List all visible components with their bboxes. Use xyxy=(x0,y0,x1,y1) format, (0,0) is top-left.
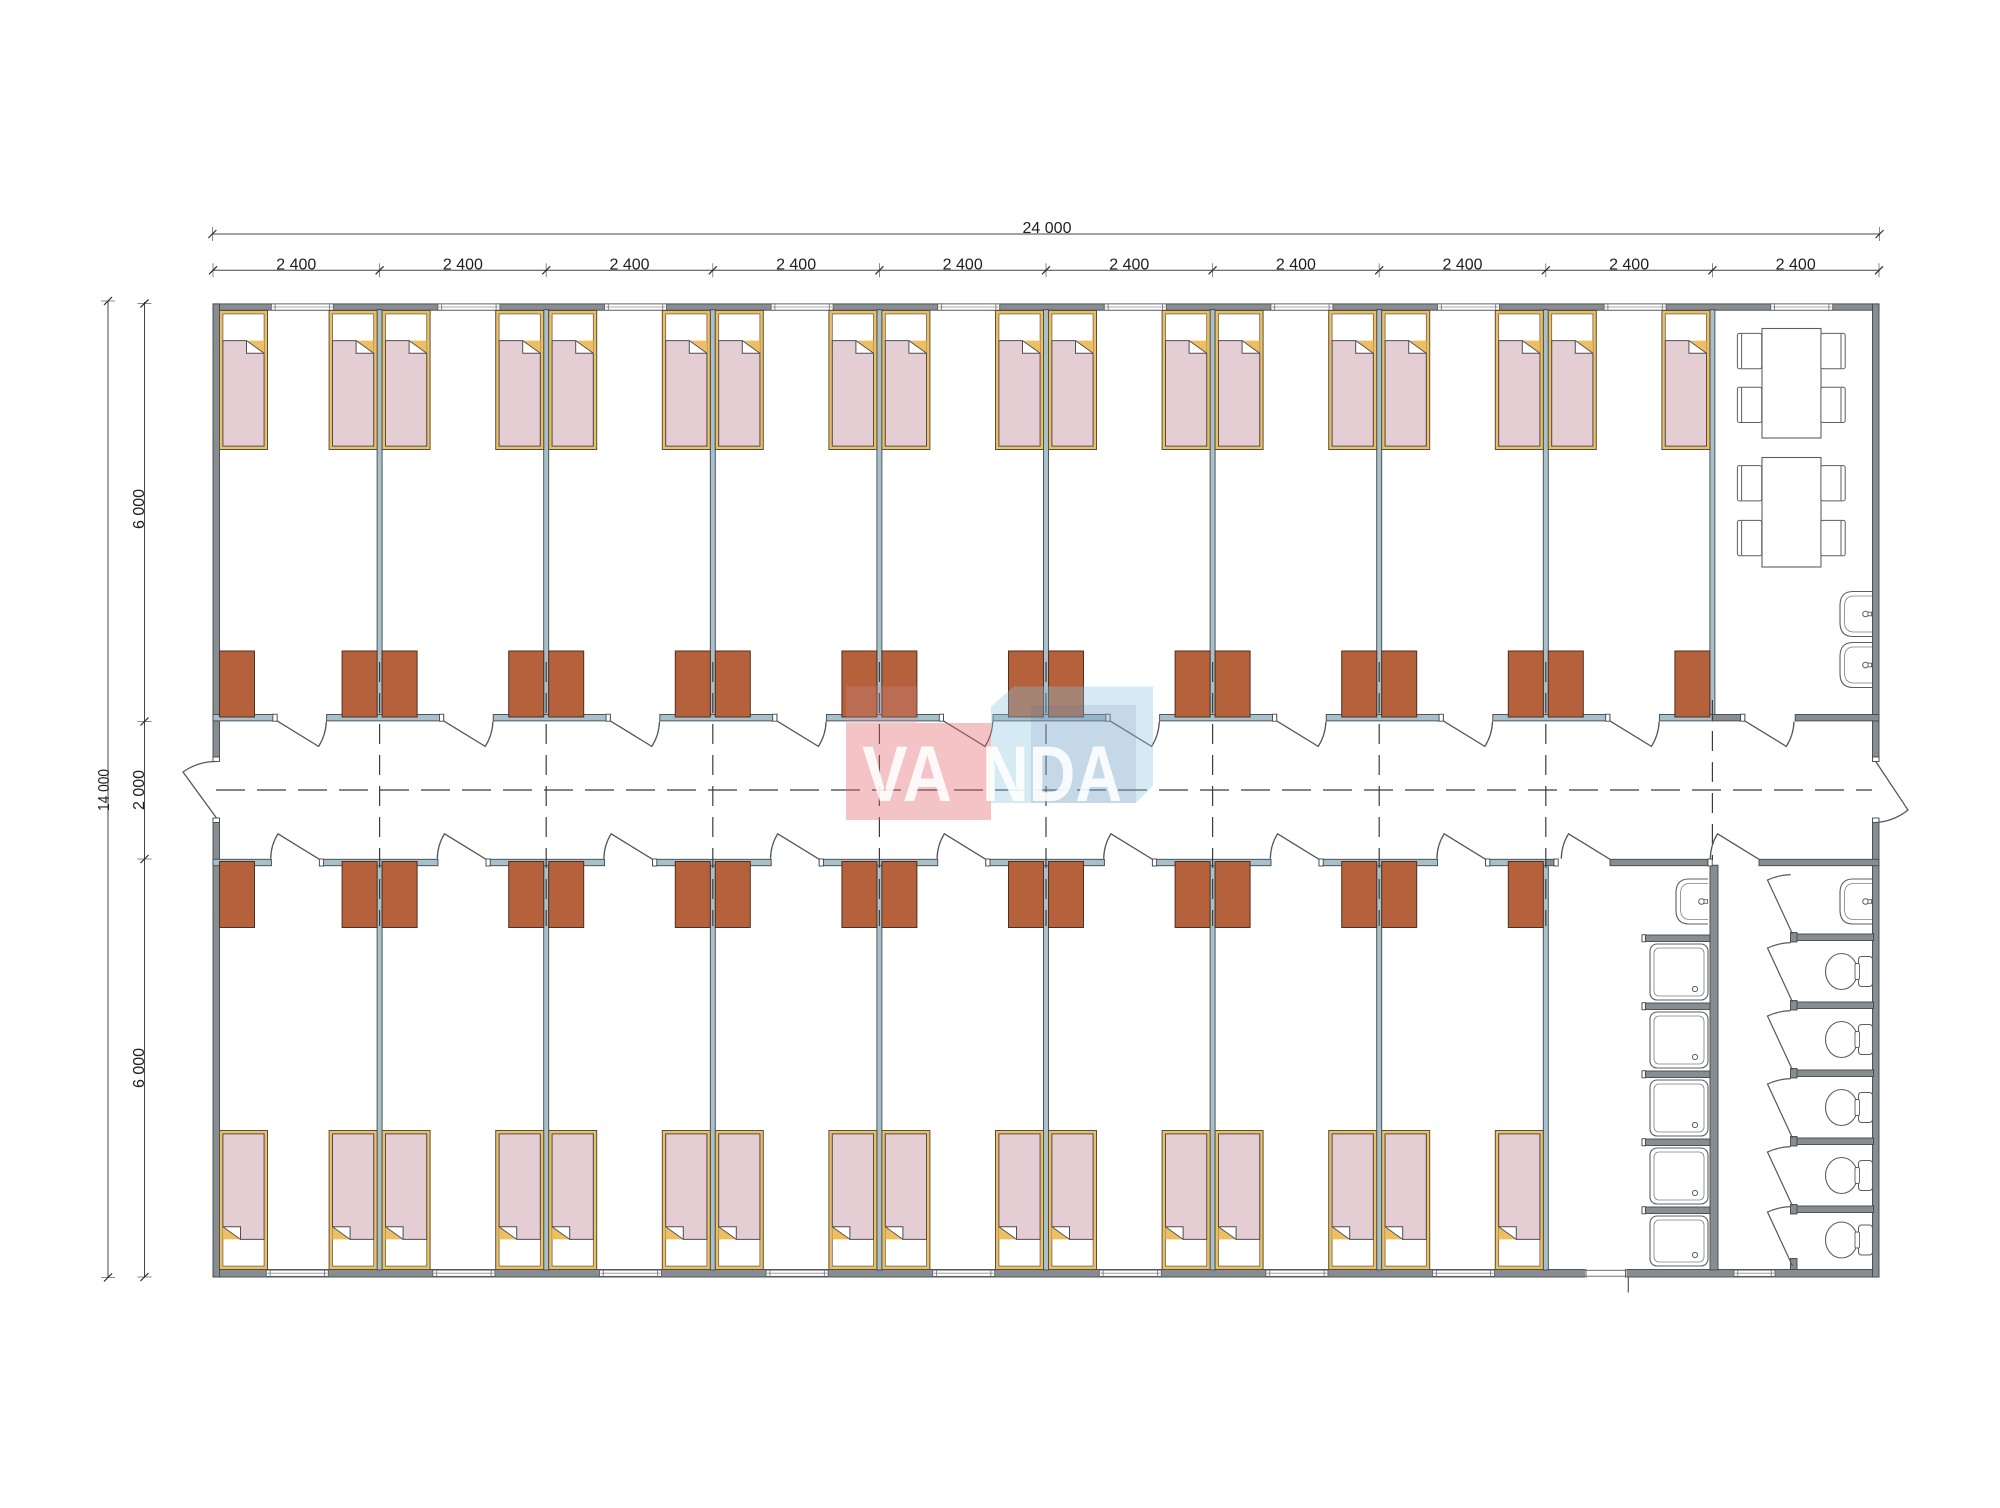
svg-text:2 400: 2 400 xyxy=(1776,257,1816,274)
svg-text:2 400: 2 400 xyxy=(1442,257,1482,274)
svg-text:NDA: NDA xyxy=(982,729,1122,818)
svg-text:6 000: 6 000 xyxy=(131,1048,148,1088)
svg-text:2 000: 2 000 xyxy=(131,770,148,810)
svg-text:6 000: 6 000 xyxy=(131,489,148,529)
svg-text:VA: VA xyxy=(862,729,952,818)
svg-text:2 400: 2 400 xyxy=(1609,257,1649,274)
svg-text:2 400: 2 400 xyxy=(1109,257,1149,274)
svg-text:2 400: 2 400 xyxy=(943,257,983,274)
svg-text:2 400: 2 400 xyxy=(443,257,483,274)
svg-text:2 400: 2 400 xyxy=(776,257,816,274)
svg-text:2 400: 2 400 xyxy=(1276,257,1316,274)
svg-text:24 000: 24 000 xyxy=(1023,220,1072,237)
svg-text:14 000: 14 000 xyxy=(96,769,113,811)
svg-text:2 400: 2 400 xyxy=(276,257,316,274)
svg-text:2 400: 2 400 xyxy=(609,257,649,274)
